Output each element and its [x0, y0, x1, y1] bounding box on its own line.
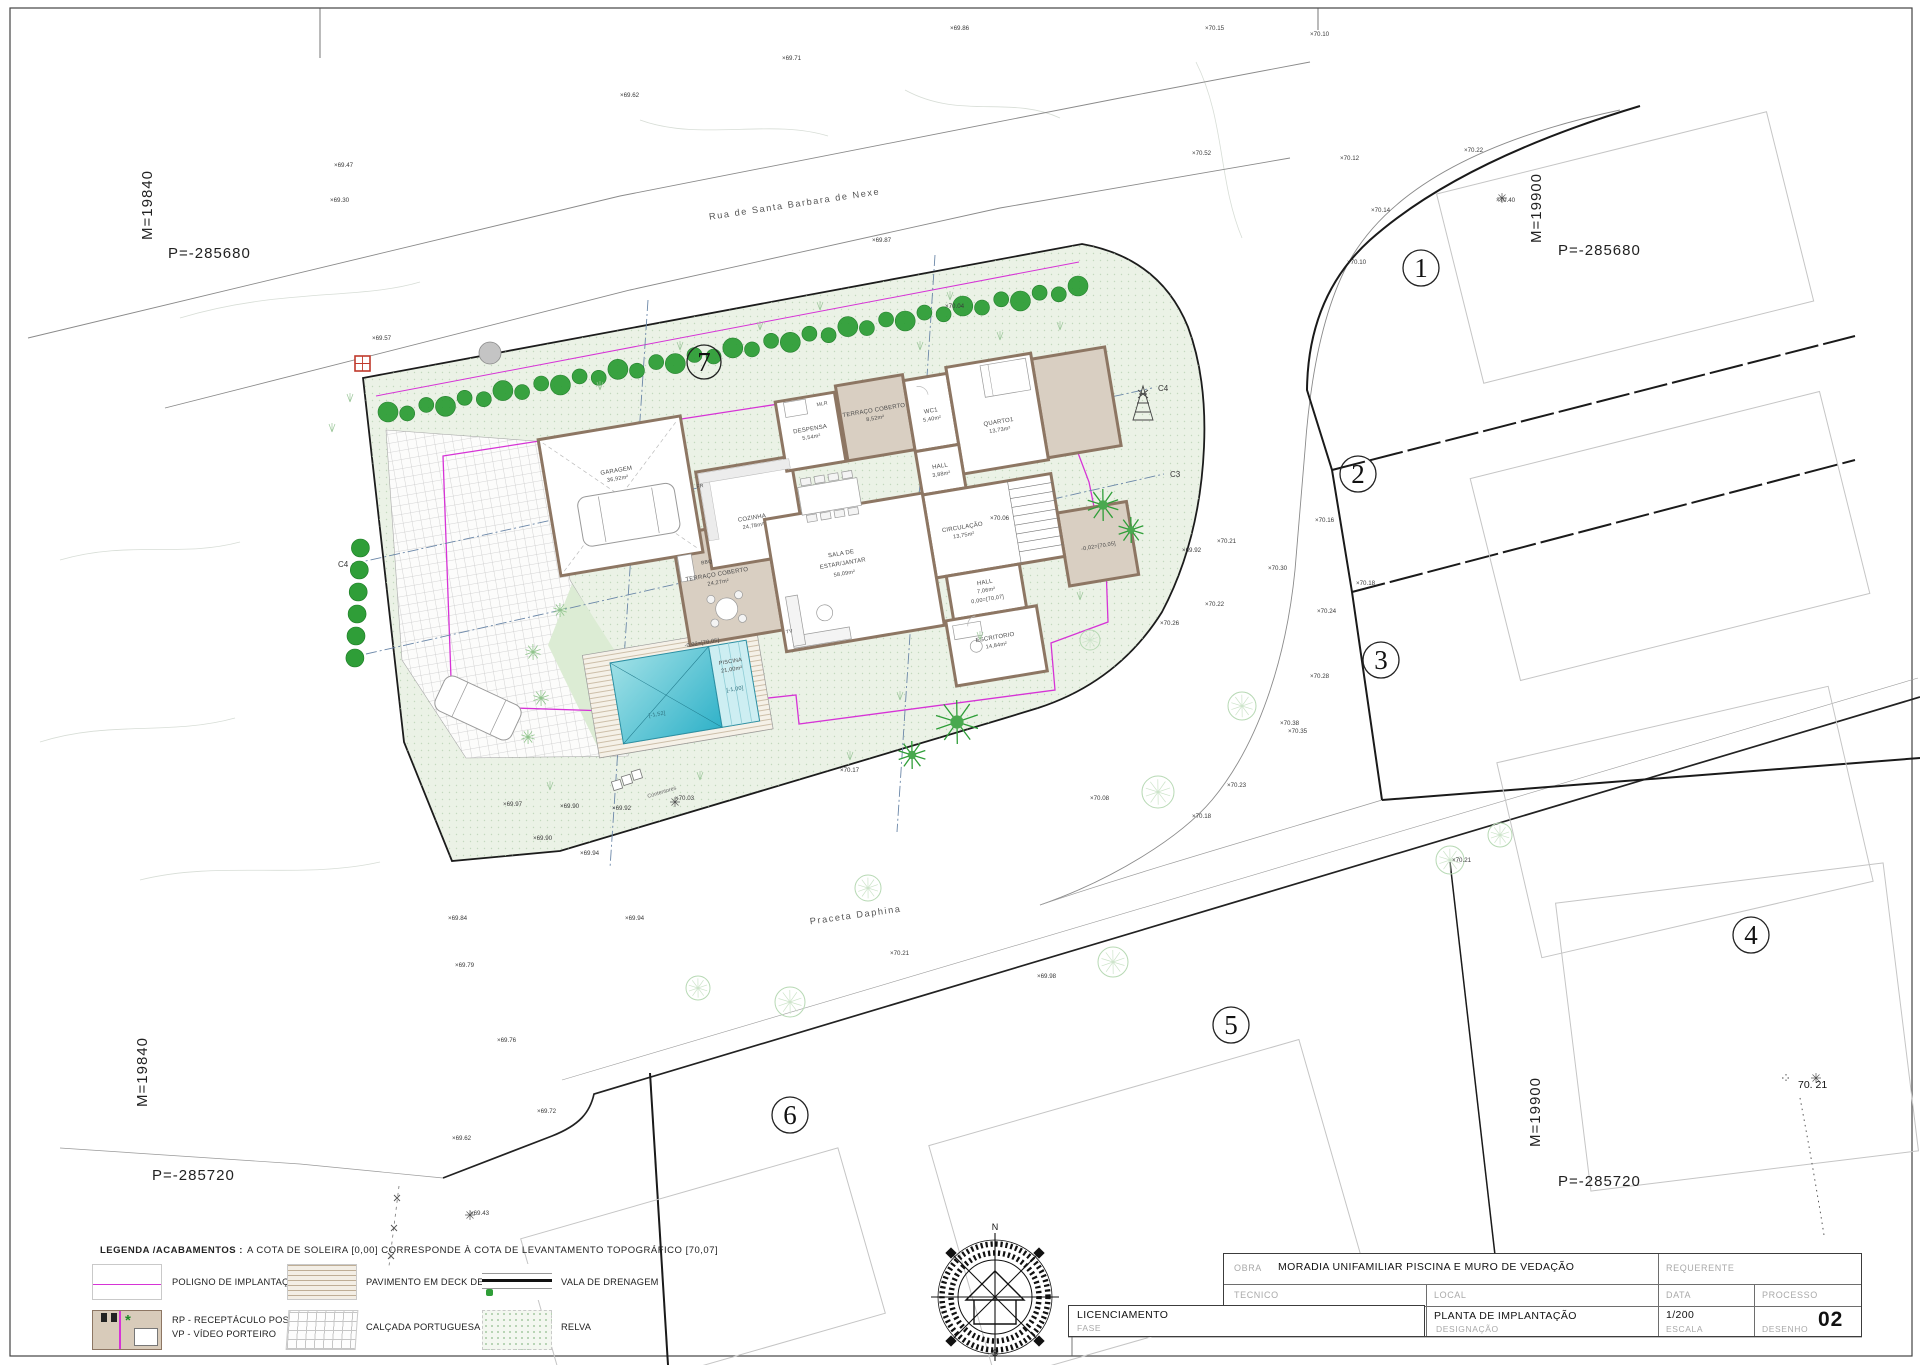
shrub	[347, 627, 365, 645]
section-label-c3-east: C3	[1170, 470, 1181, 479]
shrub	[348, 605, 366, 623]
spot-elevation: ×69.47	[334, 162, 354, 169]
compass-rose: N S	[931, 1222, 1059, 1361]
spot-elevation: ×69.79	[455, 962, 475, 969]
spot-elevation: ×70.30	[1268, 565, 1288, 572]
legend-swatch-relva	[482, 1310, 552, 1350]
hedge-bush	[378, 402, 398, 422]
spot-elevation: ×69.92	[1182, 547, 1202, 554]
spot-elevation: ×70.10	[1347, 259, 1367, 266]
lot-number-4: 4	[1744, 920, 1758, 950]
palm-center	[1098, 500, 1108, 510]
street-name-praceta: Praceta Daphina	[809, 904, 902, 927]
hedge-bush	[591, 370, 606, 385]
title-block-fase: LICENCIAMENTO FASE	[1068, 1305, 1425, 1337]
rp-vp-receptacle	[355, 356, 370, 371]
fence-x-mark	[391, 1225, 397, 1231]
spot-elevation: ×70.10	[1310, 31, 1330, 38]
coord-tl-p: P=-285680	[168, 245, 251, 262]
hedge-bush	[436, 396, 456, 416]
coord-br-m: M=19900	[1527, 1077, 1544, 1147]
spot-elevation: ×70.15	[1205, 25, 1225, 32]
spot-elevation: ×70.26	[1160, 620, 1180, 627]
spot-elevation: ×69.62	[452, 1135, 472, 1142]
hedge-bush	[895, 311, 915, 331]
lot1-boundary	[1307, 106, 1640, 800]
section-label-c4-east: C4	[1158, 384, 1169, 393]
lot-number-1: 1	[1414, 253, 1428, 283]
label-fr: FR	[696, 483, 704, 490]
spot-elevation: ×70.24	[1317, 608, 1337, 615]
lot-number-2: 2	[1351, 459, 1365, 489]
room-hall1	[915, 444, 966, 495]
spot-elevation: ×70.14	[1371, 207, 1391, 214]
compass-s: S	[992, 1348, 998, 1358]
hedge-bush	[745, 342, 760, 357]
hedge-bush	[534, 376, 549, 391]
tb-obra-label: OBRA	[1234, 1263, 1262, 1273]
palm-center	[1127, 526, 1135, 534]
spot-elevation: ×69.86	[950, 25, 970, 32]
spot-elevation: ×70.04	[945, 303, 965, 310]
legend-label-vp: VP - VÍDEO PORTEIRO	[172, 1329, 276, 1339]
spot-elevation: ×70.28	[1310, 673, 1330, 680]
hedge-bush	[1032, 285, 1047, 300]
tb-data-label: DATA	[1666, 1290, 1691, 1300]
tb-escala-value: 1/200	[1666, 1309, 1694, 1321]
spot-elevation: ×69.87	[872, 237, 892, 244]
hedge-bush	[994, 292, 1009, 307]
legend-swatch-calcada	[286, 1310, 359, 1350]
spot-elevation: ×69.76	[497, 1037, 517, 1044]
hedge-bush	[649, 355, 664, 370]
hedge-bush	[630, 363, 645, 378]
palm-center	[950, 715, 963, 728]
hedge-bush	[821, 328, 836, 343]
spot-elevation: ×69.43	[470, 1210, 490, 1217]
coord-bl-m: M=19840	[134, 1037, 151, 1107]
palm-tree-icon	[1231, 695, 1252, 717]
hedge-bush	[917, 305, 932, 320]
hedge-bush	[608, 359, 628, 379]
section-label-c4: C4	[338, 560, 349, 569]
spot-elevation: ×69.92	[612, 805, 632, 812]
spot-elevation: ×70.22	[1205, 601, 1225, 608]
lot-number-3: 3	[1374, 645, 1388, 675]
hedge-bush	[879, 312, 894, 327]
hedge-bush	[493, 381, 513, 401]
compass-n: N	[992, 1222, 999, 1232]
hedge-bush	[476, 392, 491, 407]
hedge-bush	[975, 300, 990, 315]
palm-tree-icon	[689, 978, 707, 997]
lot2-3-divider	[1352, 460, 1855, 592]
legend-label-calcada: CALÇADA PORTUGUESA	[366, 1322, 481, 1332]
spot-elevation: ×70.21	[890, 950, 910, 957]
tb-drawing-number: 02	[1818, 1308, 1843, 1332]
spot-elevation: ×69.98	[1037, 973, 1057, 980]
elevation-note: 70. 21	[1798, 1079, 1827, 1091]
hedge-bush	[1010, 291, 1030, 311]
palm-tree-icon	[1102, 950, 1125, 974]
spot-elevation: ×69.97	[503, 801, 523, 808]
palm-center	[908, 751, 916, 759]
spot-elevation: ×70.17	[840, 767, 860, 774]
palm-tree-icon	[779, 990, 802, 1014]
tb-local-label: LOCAL	[1434, 1290, 1467, 1300]
coord-tr-m: M=19900	[1528, 173, 1545, 243]
spot-elevation: ×70.22	[1464, 147, 1484, 154]
spot-elevation: ×70.21	[1452, 857, 1472, 864]
spot-elevation: ×69.71	[782, 55, 802, 62]
lot-number-7: 7	[697, 347, 711, 377]
legend-swatch-deck	[287, 1264, 357, 1300]
spot-elevation: ×70.08	[1090, 795, 1110, 802]
coord-bl-p: P=-285720	[152, 1167, 235, 1184]
spot-elevation: ×70.06	[990, 515, 1010, 522]
spot-elevation: ×70.12	[1340, 155, 1360, 162]
spot-elevation: ×70.16	[1315, 517, 1335, 524]
hedge-bush	[572, 369, 587, 384]
hedge-bush	[457, 390, 472, 405]
spot-elevation: ×69.72	[537, 1108, 557, 1115]
coord-tr-p: P=-285680	[1558, 242, 1641, 259]
legend-swatch-vala	[482, 1264, 552, 1300]
tb-designacao-label: DESIGNAÇÃO	[1436, 1324, 1499, 1334]
spot-elevation: ×70.35	[1288, 728, 1308, 735]
hedge-bush	[419, 397, 434, 412]
hedge-bush	[1068, 276, 1088, 296]
spot-elevation: ×69.57	[372, 335, 392, 342]
hedge-bush	[838, 317, 858, 337]
grass-tuft	[347, 393, 353, 402]
legend-swatch-rpvp: *	[92, 1310, 162, 1350]
spot-elevation: ×69.84	[448, 915, 468, 922]
tb-desenho-label: DESENHO	[1762, 1324, 1808, 1334]
round-tree	[479, 342, 501, 364]
lot4-west-divider	[1450, 862, 1495, 1255]
tb-requerente-label: REQUERENTE	[1666, 1263, 1735, 1273]
legend-label-relva: RELVA	[561, 1322, 591, 1332]
hedge-bush	[400, 406, 415, 421]
site-plan-sheet: C4 C3 C4 C3 Contentores	[0, 0, 1920, 1365]
field-fence	[60, 1148, 443, 1178]
shrub	[349, 583, 367, 601]
survey-sun-icon	[670, 797, 680, 807]
survey-sun-icon	[1497, 193, 1507, 203]
hedge-bush	[1051, 287, 1066, 302]
legend-title-bold: LEGENDA /ACABAMENTOS :	[100, 1245, 243, 1256]
tb-escala-label: ESCALA	[1666, 1324, 1703, 1334]
spot-elevation: ×69.94	[625, 915, 645, 922]
spot-elevation: ×70.52	[1192, 150, 1212, 157]
spot-elevation: ×70.18	[1192, 813, 1212, 820]
spot-elevation: ×69.90	[533, 835, 553, 842]
spot-elevation: ×70.38	[1280, 720, 1300, 727]
hedge-bush	[723, 338, 743, 358]
palm-icon: *	[125, 1312, 131, 1329]
spot-elevation: ×69.62	[620, 92, 640, 99]
palm-tree-icon	[1146, 779, 1170, 805]
hedge-bush	[550, 375, 570, 395]
spot-elevation: ×70.03	[675, 795, 695, 802]
site-plan-drawing: C4 C3 C4 C3 Contentores	[0, 0, 1920, 1365]
lot-number-6: 6	[783, 1100, 797, 1130]
lot5-6-divider	[650, 1073, 668, 1365]
spot-elevation: ×70.21	[1217, 538, 1237, 545]
coord-tl-m: M=19840	[139, 170, 156, 240]
palm-tree-icon	[858, 878, 878, 899]
spot-elevation: ×70.18	[1356, 580, 1376, 587]
survey-sun-icon	[465, 1210, 475, 1220]
hedge-bush	[764, 333, 779, 348]
spot-elevation: ×69.90	[560, 803, 580, 810]
tb-designacao-value: PLANTA DE IMPLANTAÇÃO	[1434, 1310, 1577, 1322]
hedge-bush	[859, 321, 874, 336]
hedge-bush	[515, 385, 530, 400]
legend-label-rp: RP - RECEPTÁCULO POSTA	[172, 1315, 301, 1325]
coord-br-p: P=-285720	[1558, 1173, 1641, 1190]
lot3-4-divider	[1382, 758, 1920, 800]
shrub	[346, 649, 364, 667]
tb-fase-label: FASE	[1077, 1323, 1101, 1333]
tb-licenciamento-value: LICENCIAMENTO	[1077, 1309, 1168, 1321]
tb-obra-value: MORADIA UNIFAMILIAR PISCINA E MURO DE VE…	[1278, 1261, 1574, 1273]
spot-elevation: ×69.30	[330, 197, 350, 204]
spot-elevation: ×70.23	[1227, 782, 1247, 789]
hedge-bush	[780, 332, 800, 352]
legend-label-poligno: POLIGNO DE IMPLANTAÇÃO	[172, 1277, 303, 1287]
hedge-bush	[802, 326, 817, 341]
legend-label-vala: VALA DE DRENAGEM	[561, 1277, 659, 1287]
tb-tecnico-label: TECNICO	[1234, 1290, 1279, 1300]
street-name-rua: Rua de Santa Barbara de Nexe	[708, 186, 881, 221]
tb-processo-label: PROCESSO	[1762, 1290, 1818, 1300]
palm-tree-icon	[1491, 825, 1509, 844]
spot-elevation: ×69.94	[580, 850, 600, 857]
legend-title: LEGENDA /ACABAMENTOS :A COTA DE SOLEIRA …	[100, 1245, 718, 1256]
hedge-bush	[665, 354, 685, 374]
elevation-note-group: 70. 21	[1782, 1074, 1827, 1235]
lot-number-5: 5	[1224, 1010, 1238, 1040]
shrub	[350, 561, 368, 579]
legend-title-rest: A COTA DE SOLEIRA [0,00] CORRESPONDE À C…	[247, 1245, 718, 1256]
grass-tuft	[329, 423, 335, 432]
shrub	[351, 539, 369, 557]
legend-swatch-poligno	[92, 1264, 162, 1300]
